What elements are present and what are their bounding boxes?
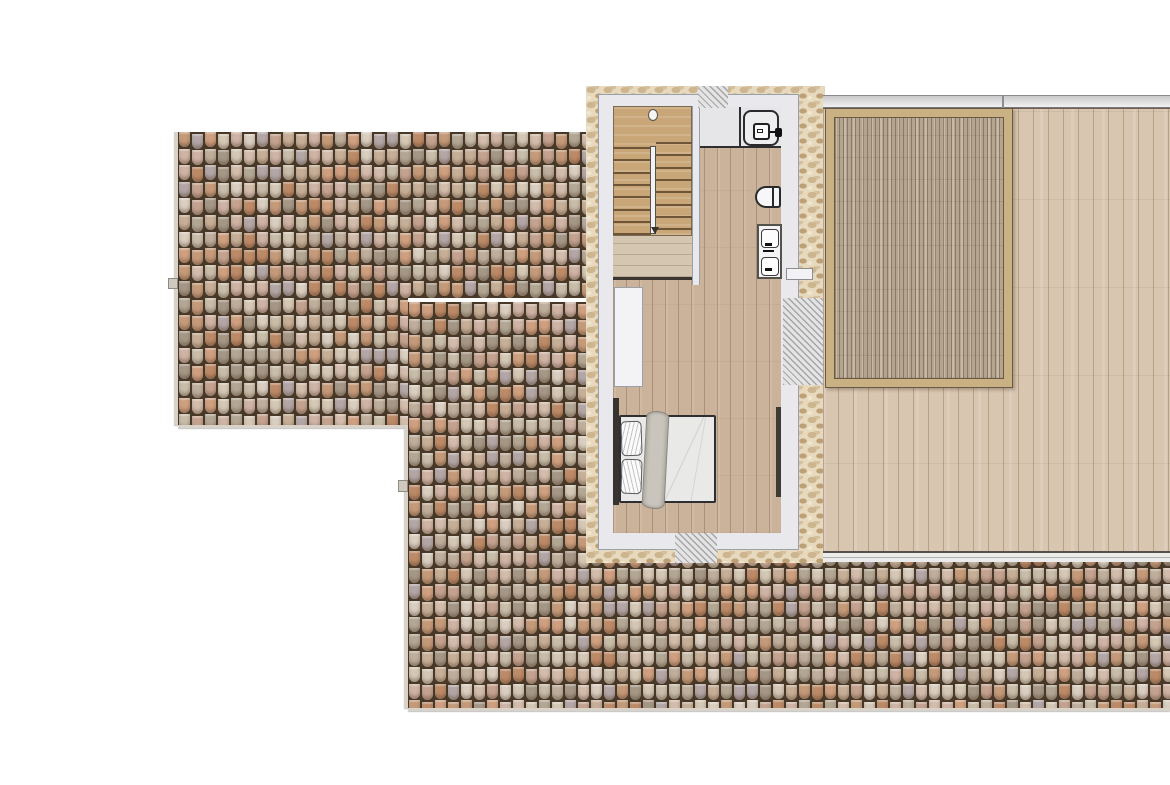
roof-tile (452, 183, 463, 198)
roof-tile (721, 634, 732, 649)
roof-tile (552, 586, 563, 601)
roof-tile (1020, 652, 1031, 667)
roof-tile (747, 651, 758, 666)
stair-tread-line (656, 204, 692, 206)
roof-tile (465, 232, 476, 247)
roof-tile (721, 584, 732, 599)
roof-tile (569, 182, 580, 197)
roof-tile (1137, 568, 1148, 583)
roof-tile (439, 215, 450, 230)
stair-tread-line (613, 159, 651, 161)
gutter-bracket-icon (398, 480, 408, 492)
roof-tile (448, 370, 459, 385)
roof-tile (409, 551, 420, 566)
roof-tile (448, 304, 459, 319)
roof-tile (257, 414, 268, 425)
roof-tile (192, 134, 203, 149)
roof-tile (890, 636, 901, 651)
roof-tile (656, 652, 667, 667)
roof-tile (517, 232, 528, 247)
roof-tile (487, 451, 498, 466)
roof-tile (474, 536, 485, 551)
roof-tile (205, 149, 216, 164)
roof-tile (500, 636, 511, 651)
roof-tile (929, 651, 940, 666)
roof-eave-bottom-left (178, 425, 408, 428)
roof-tile (435, 385, 446, 400)
roof-tile (825, 634, 836, 649)
stair-tread-line (613, 209, 651, 211)
roof-tile (630, 669, 641, 684)
roof-tile (205, 315, 216, 330)
roof-tile (981, 667, 992, 682)
stair-tread-line (613, 221, 651, 223)
roof-tile (903, 584, 914, 599)
roof-tile (851, 684, 862, 699)
roof-tile (513, 601, 524, 616)
roof-tile (890, 685, 901, 700)
roof-tile (890, 602, 901, 617)
roof-tile (1150, 586, 1161, 601)
roof-tile (461, 700, 472, 708)
roof-tile (400, 167, 411, 182)
roof-tile (968, 602, 979, 617)
roof-tile (539, 418, 550, 433)
roof-tile (721, 568, 732, 583)
roof-tile (296, 134, 307, 149)
roof-tile (916, 586, 927, 601)
roof-tile (539, 700, 550, 708)
roof-tile (205, 348, 216, 363)
roof-tile (387, 331, 398, 346)
roof-tile (409, 700, 420, 708)
roof-tile (1098, 602, 1109, 617)
roof-tile (556, 134, 567, 149)
roof-tile (890, 586, 901, 601)
roof-tile (721, 651, 732, 666)
roof-tile (374, 217, 385, 232)
roof-tile (968, 569, 979, 584)
roof-tile (361, 248, 372, 263)
roof-tile (994, 669, 1005, 684)
roof-tile (1137, 601, 1148, 616)
roof-tile (309, 149, 320, 164)
roof-tile (270, 150, 281, 165)
roof-tile (517, 215, 528, 230)
roof-tile (591, 651, 602, 666)
roof-tile (747, 684, 758, 699)
roof-tile (491, 165, 502, 180)
roof-tile (218, 349, 229, 364)
roof-tile (543, 281, 554, 296)
roof-tile (539, 402, 550, 417)
roof-tile (539, 385, 550, 400)
roof-tile (296, 399, 307, 414)
roof-tile (409, 501, 420, 516)
roof-tile (413, 182, 424, 197)
roof-tile (296, 183, 307, 198)
roof-tile (348, 150, 359, 165)
roof-tile (773, 601, 784, 616)
roof-tile (231, 315, 242, 330)
roof-tile (309, 414, 320, 425)
roof-tile (851, 568, 862, 583)
roof-tile (231, 232, 242, 247)
roof-tile (361, 132, 372, 147)
roof-tile (903, 651, 914, 666)
roof-tile (348, 366, 359, 381)
roof-tile (487, 651, 498, 666)
roof-tile (465, 265, 476, 280)
roof-tile (552, 403, 563, 418)
roof-tile (734, 586, 745, 601)
roof-tile (1085, 617, 1096, 632)
roof-tile (309, 331, 320, 346)
roof-tile (799, 684, 810, 699)
roof-tile (409, 518, 420, 533)
roof-tile (270, 233, 281, 248)
roof-tile (552, 602, 563, 617)
roof-tile (500, 619, 511, 634)
roof-tile (786, 569, 797, 584)
roof-tile (1085, 568, 1096, 583)
roof-tile (1059, 584, 1070, 599)
roof-tile (192, 383, 203, 398)
roof-tile (838, 602, 849, 617)
roof-tile (400, 233, 411, 248)
roof-tile (812, 669, 823, 684)
roof-tile (539, 435, 550, 450)
roof-tile (825, 667, 836, 682)
roof-tile (231, 248, 242, 263)
roof-tile (864, 669, 875, 684)
roof-tile (556, 266, 567, 281)
roof-tile (526, 636, 537, 651)
roof-tile (504, 266, 515, 281)
roof-tile (322, 416, 333, 425)
roof-tile (422, 619, 433, 634)
roof-tile (1150, 652, 1161, 667)
roof-tile (539, 319, 550, 334)
roof-tile (448, 619, 459, 634)
roof-tile (530, 283, 541, 298)
roof-tile (335, 182, 346, 197)
roof-tile (435, 418, 446, 433)
roof-tile (335, 198, 346, 213)
roof-tile (504, 167, 515, 182)
roof-tile (348, 200, 359, 215)
roof-tile (786, 669, 797, 684)
roof-tile (283, 132, 294, 147)
roof-tile (1124, 569, 1135, 584)
roof-tile (422, 586, 433, 601)
roof-tile (994, 685, 1005, 700)
roof-tile (491, 265, 502, 280)
roof-tile (474, 387, 485, 402)
roof-tile (335, 265, 346, 280)
roof-tile (1007, 651, 1018, 666)
roof-tile (231, 348, 242, 363)
roof-tile (231, 215, 242, 230)
roof-tile (435, 518, 446, 533)
roof-tile (435, 451, 446, 466)
roof-tile (487, 319, 498, 334)
roof-tile (530, 150, 541, 165)
roof-tile (656, 685, 667, 700)
roof-tile (695, 634, 706, 649)
roof-tile (452, 266, 463, 281)
roof-tile (218, 333, 229, 348)
roof-tile (348, 283, 359, 298)
roof-tile (565, 617, 576, 632)
roof-tile (1007, 617, 1018, 632)
roof-tile (461, 385, 472, 400)
roof-tile (422, 536, 433, 551)
roof-tile (448, 636, 459, 651)
roof-tile (257, 149, 268, 164)
roof-tile (1098, 669, 1109, 684)
roof-tile (1098, 652, 1109, 667)
roof-tile (530, 167, 541, 182)
roof-tile (409, 667, 420, 682)
roof-tile (539, 601, 550, 616)
roof-tile (270, 333, 281, 348)
roof-tile (296, 300, 307, 315)
roof-tile (682, 685, 693, 700)
roof-tile (526, 453, 537, 468)
roof-tile (747, 601, 758, 616)
roof-tile (374, 233, 385, 248)
roof-tile (283, 381, 294, 396)
roof-tile (335, 381, 346, 396)
roof-tile (643, 601, 654, 616)
roof-tile (461, 617, 472, 632)
roof-tile (461, 485, 472, 500)
roof-tile (283, 182, 294, 197)
roof-tile (890, 669, 901, 684)
roof-tile (981, 584, 992, 599)
roof-tile (812, 602, 823, 617)
roof-tile (257, 298, 268, 313)
roof-tile (617, 667, 628, 682)
roof-tile (968, 685, 979, 700)
roof-tile (448, 387, 459, 402)
roof-tile (851, 667, 862, 682)
roof-tile (244, 316, 255, 331)
roof-tile (569, 265, 580, 280)
roof-tile (257, 198, 268, 213)
stair-tread-line (656, 142, 692, 144)
roof-tile (734, 636, 745, 651)
stair-tread-line (613, 233, 651, 235)
roof-tile (461, 684, 472, 699)
roof-tile (1046, 636, 1057, 651)
roof-tile (270, 399, 281, 414)
roof-tile (552, 420, 563, 435)
roof-tile (504, 283, 515, 298)
roof-tile (1111, 584, 1122, 599)
roof-tile (504, 134, 515, 149)
roof-tile (513, 451, 524, 466)
roof-tile (361, 348, 372, 363)
roof-tile (348, 300, 359, 315)
roof-tile (409, 485, 420, 500)
roof-tile (474, 320, 485, 335)
roof-tile (257, 398, 268, 413)
roof-tile (513, 418, 524, 433)
roof-tile (283, 315, 294, 330)
roof-tile (409, 617, 420, 632)
roof-tile (543, 215, 554, 230)
roof-tile (448, 519, 459, 534)
roof-tile (426, 183, 437, 198)
roof-tile (682, 569, 693, 584)
roof-tile (799, 651, 810, 666)
stair-tread-line (613, 184, 651, 186)
roof-tile (322, 383, 333, 398)
roof-tile (747, 634, 758, 649)
roof-tile (903, 700, 914, 708)
roof-tile (569, 149, 580, 164)
roof-tile (981, 601, 992, 616)
roof-tile (1020, 586, 1031, 601)
roof-tile (942, 636, 953, 651)
roof-tile (205, 215, 216, 230)
sink-faucet-icon (765, 243, 772, 246)
roof-tile (1137, 634, 1148, 649)
roof-tile (630, 569, 641, 584)
roof-tile (374, 266, 385, 281)
roof-tile (422, 553, 433, 568)
roof-tile (478, 200, 489, 215)
roof-tile (1033, 651, 1044, 666)
roof-tile (591, 568, 602, 583)
roof-tile (1059, 568, 1070, 583)
roof-tile (448, 337, 459, 352)
roof-tile (669, 651, 680, 666)
roof-tile (929, 601, 940, 616)
roof-tile (591, 667, 602, 682)
roof-tile (513, 651, 524, 666)
roof-tile (374, 250, 385, 265)
roof-tile (400, 217, 411, 232)
roof-tile (539, 352, 550, 367)
roof-tile (578, 569, 589, 584)
roof-tile (569, 198, 580, 213)
roof-tile (526, 436, 537, 451)
roof-tile (1085, 651, 1096, 666)
roof-tile (270, 416, 281, 425)
roof-tile (851, 634, 862, 649)
pergola-slats (834, 117, 1004, 379)
roof-tile (244, 283, 255, 298)
roof-tile (994, 652, 1005, 667)
roof-tile (270, 283, 281, 298)
roof-tile (309, 182, 320, 197)
roof-tile (409, 435, 420, 450)
roof-tile (517, 265, 528, 280)
roof-tile (231, 132, 242, 147)
roof-tile (552, 320, 563, 335)
roof-tile (500, 403, 511, 418)
roof-tile (296, 250, 307, 265)
roof-tile (448, 685, 459, 700)
roof-tile (1046, 602, 1057, 617)
faucet-handle-icon (757, 129, 763, 133)
roof-tile (708, 685, 719, 700)
roof-tile (799, 634, 810, 649)
roof-tile (981, 684, 992, 699)
roof-tile (968, 619, 979, 634)
roof-tile (435, 352, 446, 367)
roof-tile (348, 416, 359, 425)
roof-tile (513, 352, 524, 367)
roof-tile (422, 337, 433, 352)
roof-tile (192, 399, 203, 414)
roof-tile (1163, 617, 1170, 632)
roof-tile (955, 700, 966, 708)
roof-tile (270, 300, 281, 315)
roof-tile (387, 215, 398, 230)
roof-tile (565, 700, 576, 708)
roof-tile (903, 667, 914, 682)
roof-tile (539, 551, 550, 566)
roof-tile (552, 486, 563, 501)
roof-tile (500, 353, 511, 368)
roof-tile (513, 468, 524, 483)
roof-tile (400, 134, 411, 149)
roof-tile (348, 233, 359, 248)
roof-tile (426, 134, 437, 149)
roof-tile (1033, 617, 1044, 632)
roof-tile (361, 381, 372, 396)
roof-tile (513, 319, 524, 334)
roof-tile (218, 134, 229, 149)
roof-tile (192, 300, 203, 315)
roof-tile (513, 634, 524, 649)
roof-tile (244, 266, 255, 281)
roof-tile (955, 617, 966, 632)
roof-tile (539, 651, 550, 666)
roof-tile (179, 315, 190, 330)
roof-tile (231, 331, 242, 346)
roof-tile (500, 553, 511, 568)
roof-tile (994, 636, 1005, 651)
roof-tile (526, 652, 537, 667)
roof-tile (656, 602, 667, 617)
roof-tile (591, 601, 602, 616)
roof-tile (734, 569, 745, 584)
roof-tile (504, 233, 515, 248)
roof-tile (309, 398, 320, 413)
roof-tile (474, 619, 485, 634)
roof-tile (244, 399, 255, 414)
roof-tile (448, 669, 459, 684)
roof-tile (244, 217, 255, 232)
roof-tile (1124, 669, 1135, 684)
roof-tile (1163, 584, 1170, 599)
roof-tile (461, 651, 472, 666)
roof-tile (218, 217, 229, 232)
roof-tile (461, 568, 472, 583)
roof-tile (543, 182, 554, 197)
roof-tile (539, 617, 550, 632)
roof-tile (322, 183, 333, 198)
roof-tile (617, 651, 628, 666)
roof-tile (244, 416, 255, 425)
roof-tile (283, 348, 294, 363)
roof-tile (192, 349, 203, 364)
